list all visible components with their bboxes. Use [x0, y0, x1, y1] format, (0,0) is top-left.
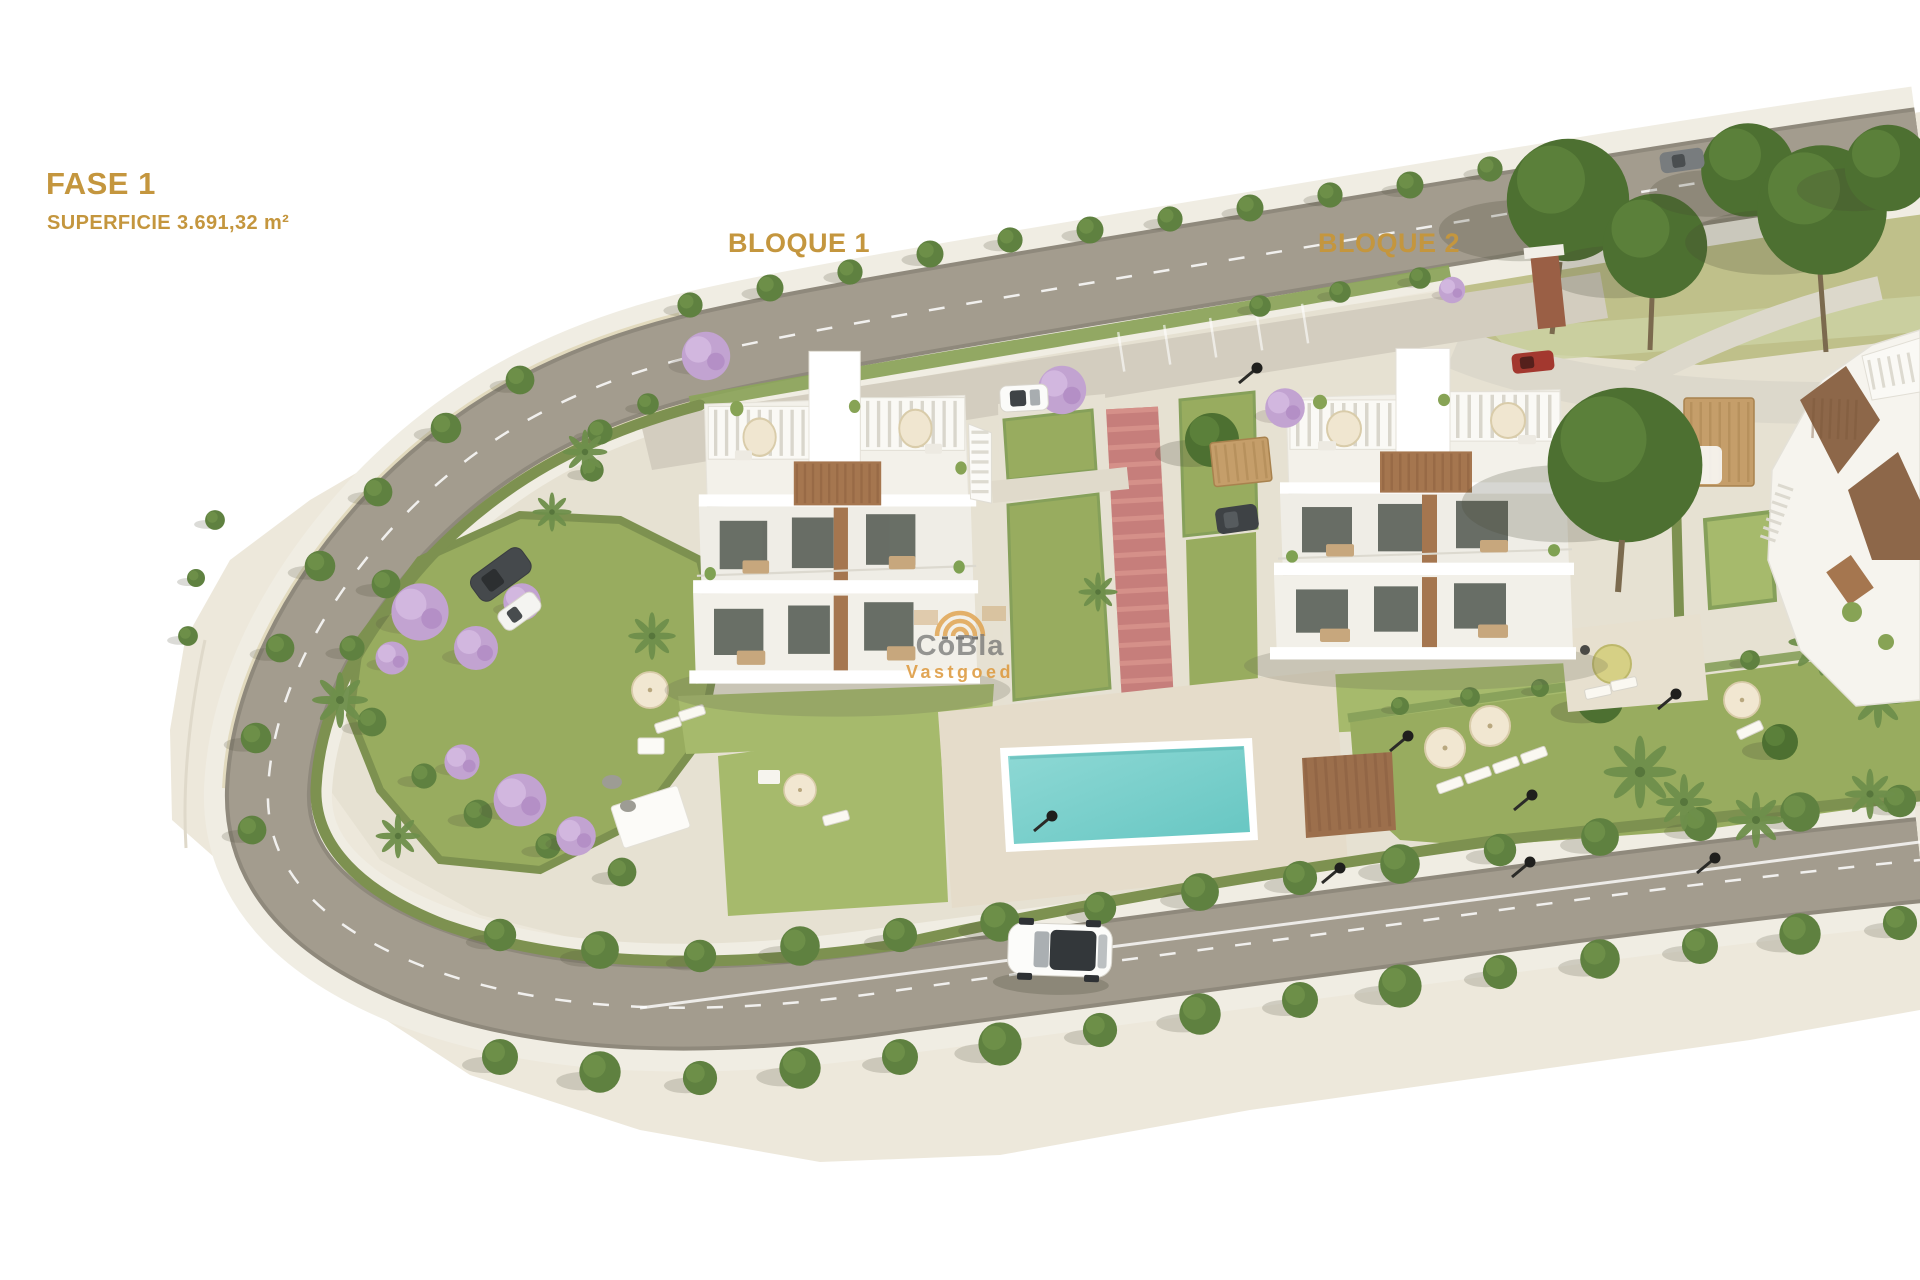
carport-bloque2 — [1210, 437, 1272, 487]
block-1-label: BLOQUE 1 — [728, 228, 870, 259]
watermark: CoBla Vastgoed — [858, 592, 1062, 683]
phase-label: FASE 1 — [46, 166, 156, 202]
watermark-brand: CoBla — [858, 632, 1062, 661]
car-white-top-parking — [999, 384, 1048, 412]
pool-water — [1008, 746, 1250, 844]
surface-area-label: SUPERFICIE 3.691,32 m² — [47, 212, 289, 235]
architectural-render-page: FASE 1 SUPERFICIE 3.691,32 m² BLOQUE 1 B… — [0, 0, 1920, 1280]
block-2-label: BLOQUE 2 — [1318, 228, 1460, 259]
watermark-subtitle: Vastgoed — [858, 662, 1062, 683]
